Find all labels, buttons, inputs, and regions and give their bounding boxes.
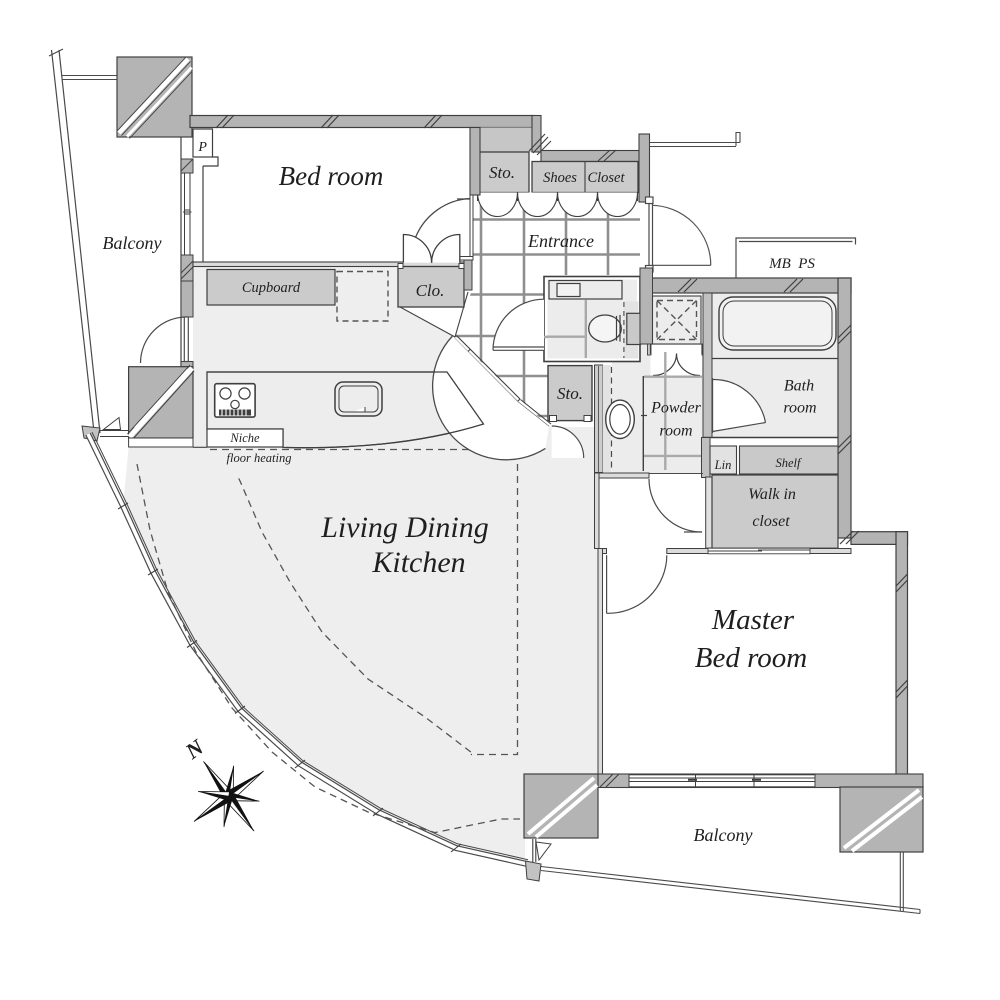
svg-text:Lin: Lin: [714, 458, 732, 472]
svg-text:Balcony: Balcony: [694, 825, 753, 845]
svg-text:floor heating: floor heating: [227, 451, 292, 465]
svg-text:MB PS: MB PS: [768, 256, 815, 272]
svg-text:Bed room: Bed room: [695, 642, 808, 674]
svg-text:Master: Master: [711, 604, 795, 636]
svg-text:Powder: Powder: [650, 400, 702, 417]
svg-text:Shelf: Shelf: [776, 456, 803, 470]
svg-text:P: P: [197, 140, 207, 155]
svg-text:room: room: [659, 423, 692, 440]
svg-text:Balcony: Balcony: [103, 233, 162, 253]
svg-text:Sto.: Sto.: [557, 384, 583, 403]
svg-text:Living Dining: Living Dining: [320, 511, 489, 544]
svg-text:Clo.: Clo.: [416, 281, 445, 300]
svg-text:Bed room: Bed room: [279, 161, 384, 191]
svg-text:Walk in: Walk in: [748, 486, 796, 503]
svg-text:Bath: Bath: [784, 378, 814, 395]
svg-text:Sto.: Sto.: [489, 163, 515, 182]
svg-text:Entrance: Entrance: [527, 231, 594, 251]
svg-text:Kitchen: Kitchen: [371, 546, 465, 579]
svg-text:Closet: Closet: [587, 170, 625, 186]
svg-text:closet: closet: [752, 513, 790, 530]
svg-text:Niche: Niche: [229, 431, 260, 445]
svg-text:Shoes: Shoes: [543, 170, 577, 186]
svg-text:room: room: [783, 400, 816, 417]
svg-text:Cupboard: Cupboard: [242, 280, 301, 296]
